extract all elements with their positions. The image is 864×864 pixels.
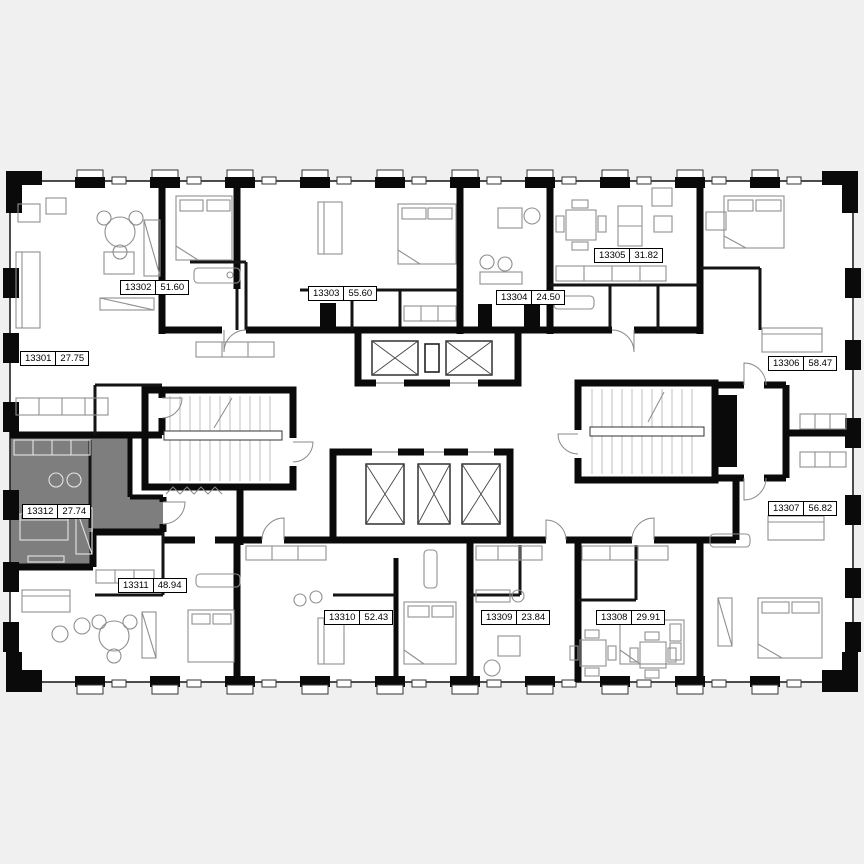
facade-column xyxy=(187,680,201,687)
facade-column xyxy=(600,177,630,188)
facade-column xyxy=(227,685,253,694)
facade-column xyxy=(450,177,480,188)
facade-column xyxy=(712,680,726,687)
unit-label-13310[interactable]: 13310 52.43 xyxy=(324,610,393,625)
facade-column xyxy=(527,685,553,694)
unit-area: 24.50 xyxy=(531,291,564,304)
floorplan-drawing xyxy=(0,0,864,864)
unit-number: 13303 xyxy=(309,287,343,300)
facade-column xyxy=(562,680,576,687)
unit-area: 31.82 xyxy=(629,249,662,262)
unit-area: 58.47 xyxy=(803,357,836,370)
facade-column xyxy=(487,680,501,687)
floorplan-canvas: 13301 27.75 13302 51.60 13303 55.60 1330… xyxy=(0,0,864,864)
facade-column xyxy=(787,680,801,687)
facade-column xyxy=(337,680,351,687)
unit-number: 13309 xyxy=(482,611,516,624)
facade-column xyxy=(262,680,276,687)
facade-column xyxy=(3,402,19,432)
unit-number: 13302 xyxy=(121,281,155,294)
unit-area: 56.82 xyxy=(803,502,836,515)
unit-number: 13301 xyxy=(21,352,55,365)
unit-label-13307[interactable]: 13307 56.82 xyxy=(768,501,837,516)
facade-column xyxy=(337,177,351,184)
unit-area: 52.43 xyxy=(359,611,392,624)
unit-number: 13307 xyxy=(769,502,803,515)
facade-column xyxy=(302,685,328,694)
unit-label-13303[interactable]: 13303 55.60 xyxy=(308,286,377,301)
facade-column xyxy=(187,177,201,184)
facade-column xyxy=(712,177,726,184)
floorplan-page: { "canvas": { "background_color": "#f0f0… xyxy=(0,0,864,864)
facade-column xyxy=(845,495,861,525)
unit-label-13306[interactable]: 13306 58.47 xyxy=(768,356,837,371)
facade-column xyxy=(3,622,19,652)
facade-column xyxy=(152,685,178,694)
facade-column xyxy=(752,685,778,694)
unit-label-13312[interactable]: 13312 27.74 xyxy=(22,504,91,519)
unit-number: 13311 xyxy=(119,579,153,592)
unit-area: 55.60 xyxy=(343,287,376,300)
unit-label-13311[interactable]: 13311 48.94 xyxy=(118,578,187,593)
unit-number: 13310 xyxy=(325,611,359,624)
unit-label-13305[interactable]: 13305 31.82 xyxy=(594,248,663,263)
unit-label-13302[interactable]: 13302 51.60 xyxy=(120,280,189,295)
unit-area: 27.75 xyxy=(55,352,88,365)
facade-column xyxy=(112,177,126,184)
facade-column xyxy=(787,177,801,184)
facade-column xyxy=(562,177,576,184)
unit-number: 13308 xyxy=(597,611,631,624)
facade-column xyxy=(375,177,405,188)
facade-column xyxy=(377,685,403,694)
facade-column xyxy=(262,177,276,184)
unit-label-13308[interactable]: 13308 29.91 xyxy=(596,610,665,625)
facade-column xyxy=(845,622,861,652)
facade-column xyxy=(3,490,19,520)
unit-area: 27.74 xyxy=(57,505,90,518)
facade-column xyxy=(412,680,426,687)
facade-column xyxy=(487,177,501,184)
unit-area: 51.60 xyxy=(155,281,188,294)
unit-number: 13306 xyxy=(769,357,803,370)
unit-label-13301[interactable]: 13301 27.75 xyxy=(20,351,89,366)
unit-number: 13305 xyxy=(595,249,629,262)
facade-column xyxy=(112,680,126,687)
facade-column xyxy=(602,685,628,694)
unit-area: 23.84 xyxy=(516,611,549,624)
facade-column xyxy=(845,340,861,370)
unit-number: 13312 xyxy=(23,505,57,518)
unit-label-13309[interactable]: 13309 23.84 xyxy=(481,610,550,625)
facade-column xyxy=(452,685,478,694)
facade-column xyxy=(75,177,105,188)
unit-area: 48.94 xyxy=(153,579,186,592)
facade-column xyxy=(3,333,19,363)
facade-column xyxy=(300,177,330,188)
facade-column xyxy=(637,177,651,184)
facade-column xyxy=(77,685,103,694)
facade-column xyxy=(677,685,703,694)
facade-column xyxy=(637,680,651,687)
unit-label-13304[interactable]: 13304 24.50 xyxy=(496,290,565,305)
unit-number: 13304 xyxy=(497,291,531,304)
facade-column xyxy=(845,568,861,598)
unit-area: 29.91 xyxy=(631,611,664,624)
facade-column xyxy=(412,177,426,184)
facade-column xyxy=(3,268,19,298)
facade-column xyxy=(750,177,780,188)
facade-column xyxy=(845,268,861,298)
